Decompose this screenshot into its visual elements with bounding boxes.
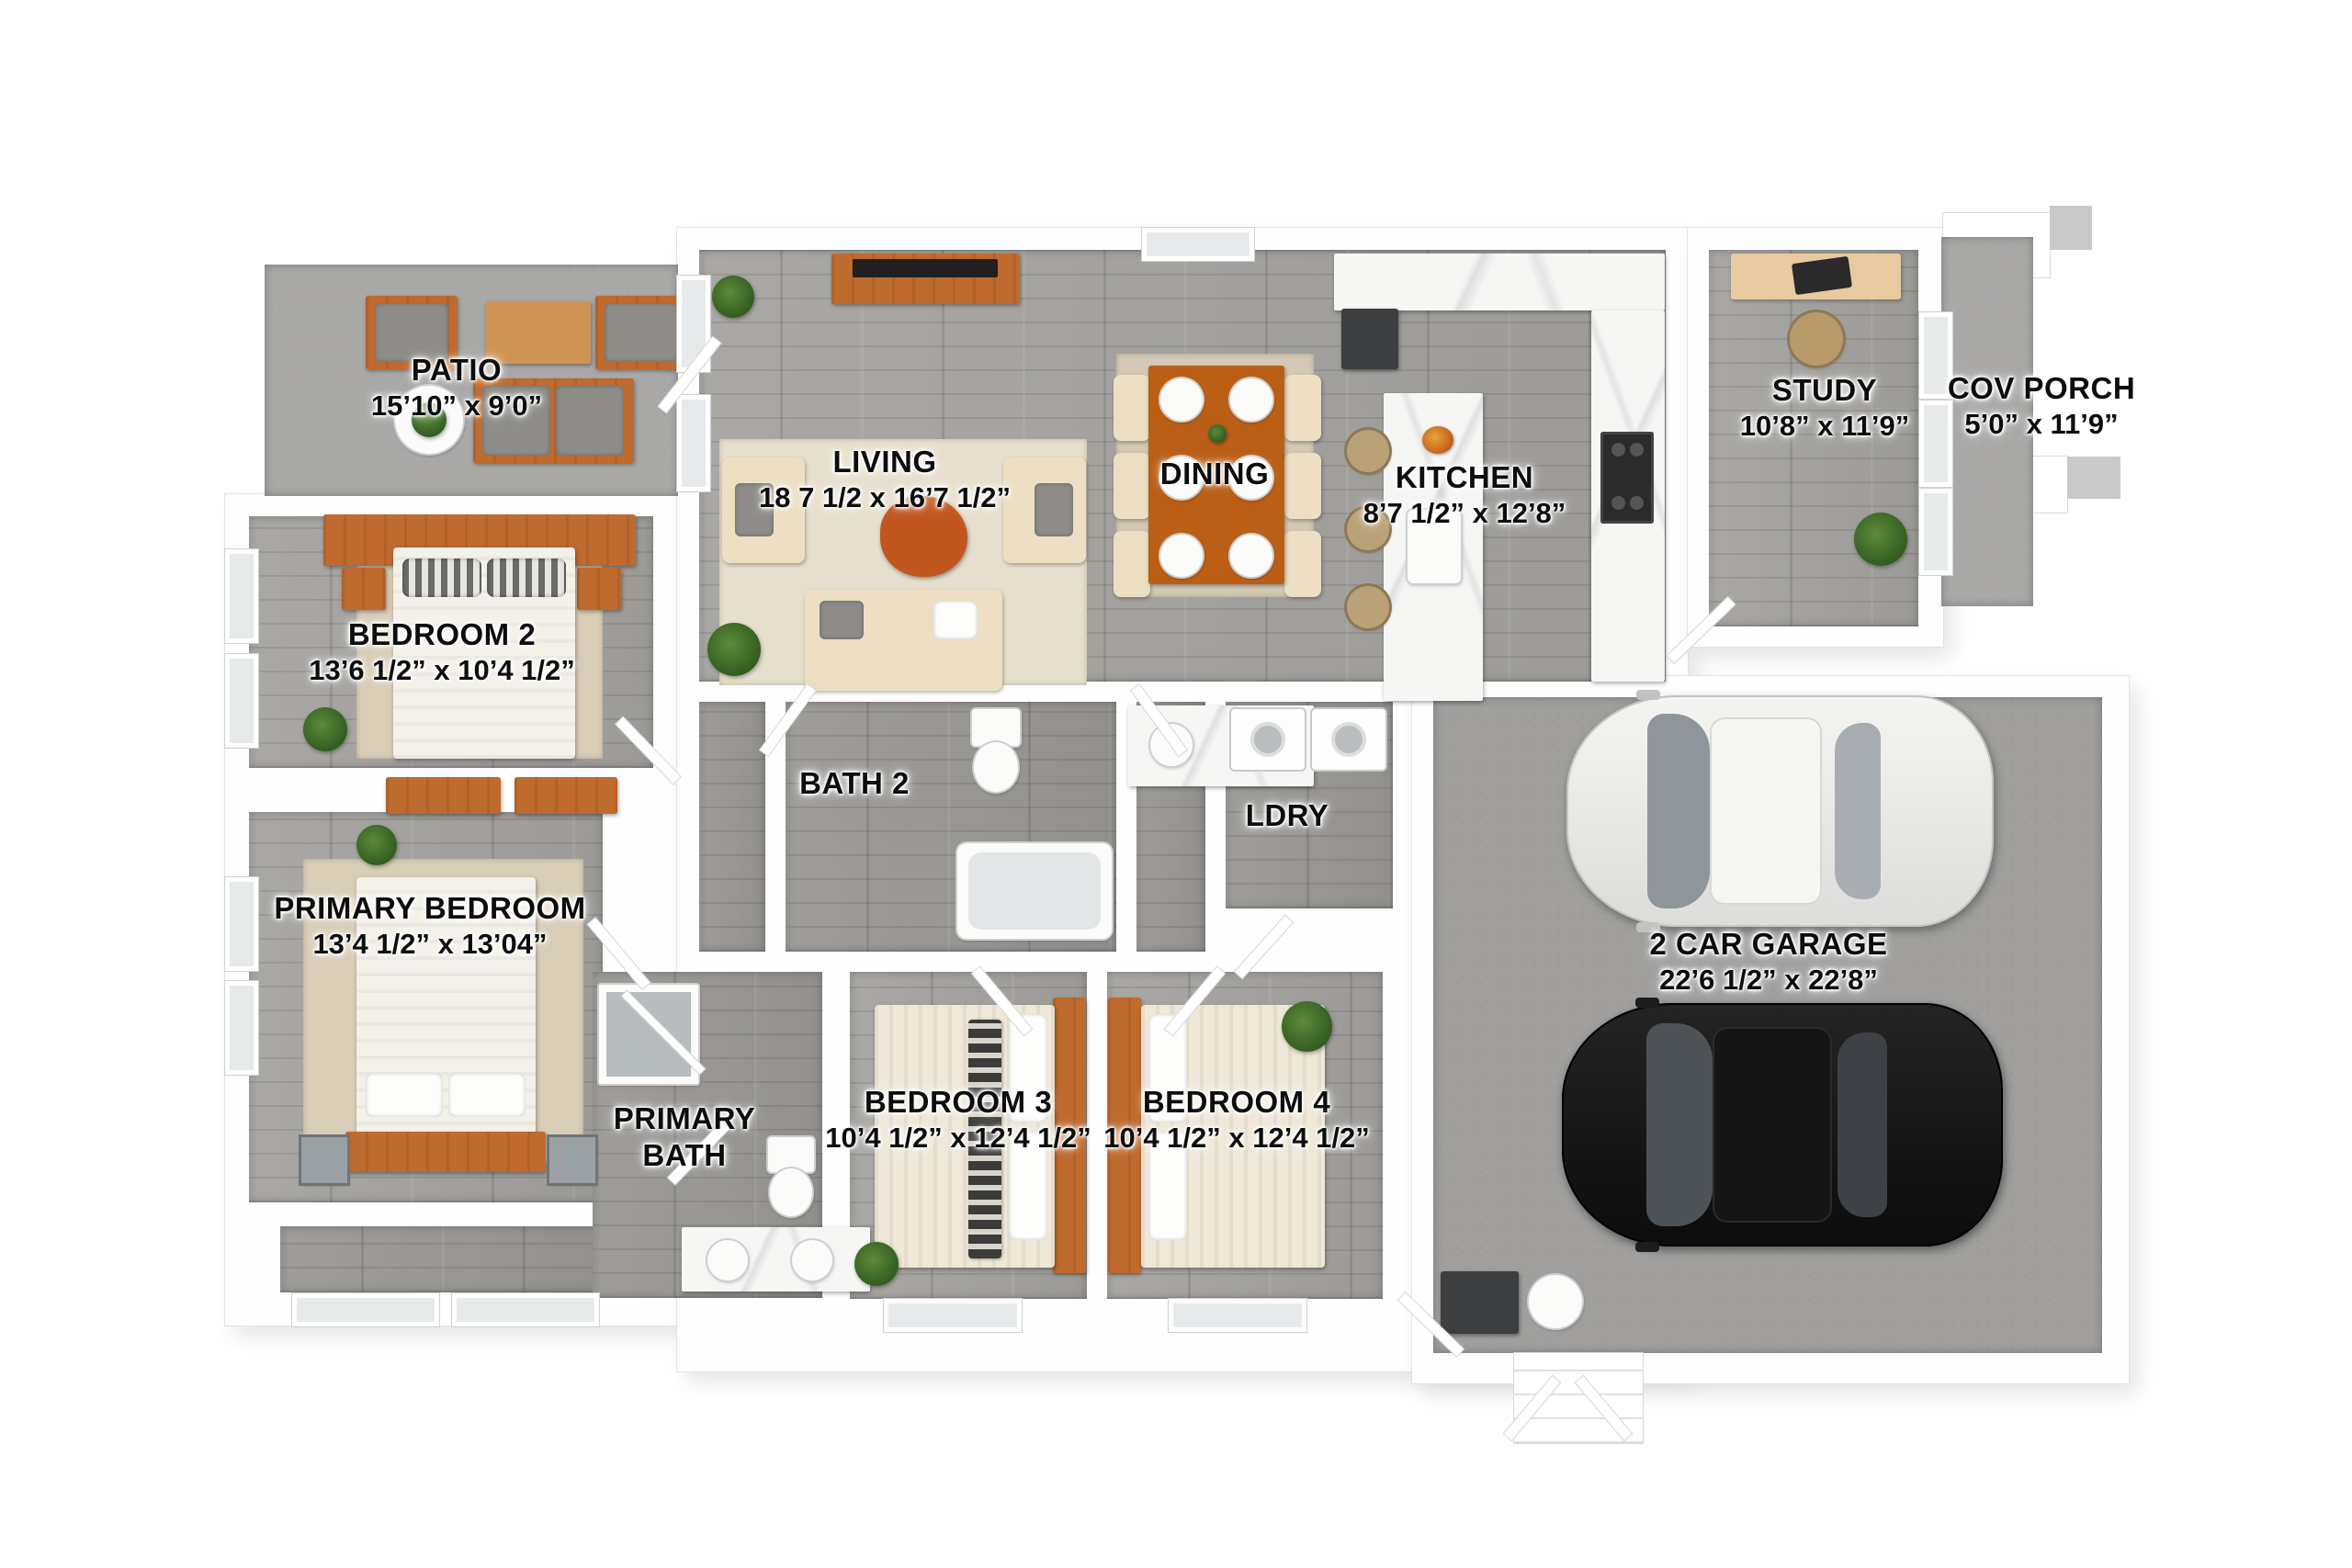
water-heater bbox=[1441, 1271, 1519, 1334]
dining-chair-l2 bbox=[1114, 453, 1150, 519]
primary-sink-1 bbox=[707, 1240, 748, 1280]
primary-sink-2 bbox=[792, 1240, 832, 1280]
room-label-bedroom3: BEDROOM 3 10’4 1/2” x 12’4 1/2” bbox=[825, 1084, 1091, 1156]
room-label-kitchen: KITCHEN 8’7 1/2” x 12’8” bbox=[1363, 459, 1566, 531]
bedroom2-pillow-left bbox=[402, 558, 481, 597]
room-name: PRIMARY BATH bbox=[586, 1100, 784, 1175]
dining-centerpiece bbox=[1208, 424, 1227, 443]
porch-beam-top-cap bbox=[2050, 206, 2092, 250]
living-plant-bottom bbox=[707, 623, 761, 676]
room-label-bedroom4: BEDROOM 4 10’4 1/2” x 12’4 1/2” bbox=[1103, 1084, 1370, 1156]
porch-beam-mid-cap bbox=[2067, 457, 2120, 499]
armchair-right bbox=[1003, 457, 1086, 563]
dryer bbox=[1312, 709, 1385, 770]
room-name: BEDROOM 2 bbox=[309, 616, 575, 653]
window-bedroom2-left-1 bbox=[225, 549, 258, 643]
bath2-tub bbox=[957, 843, 1112, 939]
room-dims: 10’8” x 11’9” bbox=[1740, 409, 1909, 444]
dresser-2 bbox=[514, 777, 617, 814]
primary-pillow-left bbox=[366, 1073, 443, 1117]
room-dims: 10’4 1/2” x 12’4 1/2” bbox=[825, 1121, 1091, 1156]
bedroom4-plant bbox=[1282, 1001, 1332, 1052]
room-name: BEDROOM 3 bbox=[825, 1084, 1091, 1121]
room-label-living: LIVING 18 7 1/2 x 16’7 1/2” bbox=[759, 444, 1011, 515]
dining-chair-r1 bbox=[1284, 375, 1321, 441]
fridge bbox=[1341, 309, 1398, 369]
room-name: COV PORCH bbox=[1948, 370, 2135, 407]
room-name: KITCHEN bbox=[1363, 459, 1566, 496]
floorplan: PATIO 15’10” x 9’0” LIVING 18 7 1/2 x 16… bbox=[0, 0, 2352, 1568]
room-label-ldry: LDRY bbox=[1246, 797, 1329, 834]
room-name: PRIMARY BEDROOM bbox=[274, 890, 585, 927]
room-label-dining: DINING bbox=[1160, 456, 1270, 492]
room-name: BEDROOM 4 bbox=[1103, 1084, 1370, 1121]
room-name: 2 CAR GARAGE bbox=[1649, 926, 1887, 963]
fruit-bowl bbox=[1422, 426, 1453, 454]
plate-1 bbox=[1160, 378, 1203, 421]
bedroom3-plant bbox=[854, 1242, 899, 1286]
room-label-bedroom2: BEDROOM 2 13’6 1/2” x 10’4 1/2” bbox=[309, 616, 575, 688]
dining-chair-r2 bbox=[1284, 453, 1321, 519]
plate-3 bbox=[1160, 535, 1203, 577]
room-name: PATIO bbox=[371, 352, 542, 389]
floorplan-page: { "rooms": { "patio": {"name": "PATIO", … bbox=[0, 0, 2352, 1568]
room-name: DINING bbox=[1160, 456, 1270, 492]
room-dims: 8’7 1/2” x 12’8” bbox=[1363, 496, 1566, 531]
primary-pillow-right bbox=[448, 1073, 526, 1117]
dining-chair-l3 bbox=[1114, 531, 1150, 597]
primary-headboard bbox=[345, 1132, 546, 1172]
window-study-right-3 bbox=[1919, 489, 1952, 575]
room-label-patio: PATIO 15’10” x 9’0” bbox=[371, 352, 542, 423]
dresser-1 bbox=[386, 777, 501, 814]
room-name: LIVING bbox=[759, 444, 1011, 480]
room-dims: 13’4 1/2” x 13’04” bbox=[274, 927, 585, 962]
patio-armchair-right bbox=[595, 296, 687, 369]
kitchen-top-counter bbox=[1334, 254, 1665, 310]
window-primary-left-1 bbox=[225, 877, 258, 971]
bath2-toilet bbox=[972, 709, 1020, 746]
room-dims: 10’4 1/2” x 12’4 1/2” bbox=[1103, 1121, 1370, 1156]
window-living-left-2 bbox=[677, 395, 710, 491]
tv bbox=[853, 259, 998, 277]
room-label-primary-bath: PRIMARY BATH bbox=[586, 1100, 784, 1175]
room-dims: 5’0” x 11’9” bbox=[1948, 407, 2135, 442]
room-name: LDRY bbox=[1246, 797, 1329, 834]
window-primary-bay-1 bbox=[292, 1293, 439, 1326]
room-label-garage: 2 CAR GARAGE 22’6 1/2” x 22’8” bbox=[1649, 926, 1887, 998]
utility-sink bbox=[1529, 1275, 1582, 1328]
primary-toilet-bowl bbox=[770, 1168, 812, 1216]
window-primary-left-2 bbox=[225, 981, 258, 1075]
plate-4 bbox=[1230, 378, 1272, 421]
stool-3 bbox=[1347, 586, 1389, 628]
room-name: STUDY bbox=[1740, 372, 1909, 409]
study-chair bbox=[1790, 312, 1843, 366]
car-black bbox=[1562, 1003, 2003, 1247]
window-primary-bay-2 bbox=[452, 1293, 599, 1326]
dining-chair-r3 bbox=[1284, 531, 1321, 597]
room-label-bath2: BATH 2 bbox=[799, 765, 910, 802]
room-label-cov-porch: COV PORCH 5’0” x 11’9” bbox=[1948, 370, 2135, 442]
bath2-toilet-bowl bbox=[974, 742, 1018, 792]
study-plant bbox=[1854, 513, 1907, 566]
room-label-primary-bedroom: PRIMARY BEDROOM 13’4 1/2” x 13’04” bbox=[274, 890, 585, 962]
primary-nightstand-left bbox=[301, 1137, 347, 1183]
plate-6 bbox=[1230, 535, 1272, 577]
room-name: BATH 2 bbox=[799, 765, 910, 802]
stove bbox=[1600, 432, 1654, 524]
room-dims: 18 7 1/2 x 16’7 1/2” bbox=[759, 480, 1011, 515]
window-bedroom2-left-2 bbox=[225, 654, 258, 748]
primary-plant bbox=[356, 825, 397, 865]
room-dims: 22’6 1/2” x 22’8” bbox=[1649, 963, 1887, 998]
window-bedroom4-bottom bbox=[1169, 1299, 1306, 1332]
bedroom2-pillow-right bbox=[487, 558, 566, 597]
room-label-study: STUDY 10’8” x 11’9” bbox=[1740, 372, 1909, 444]
window-bedroom3-bottom bbox=[884, 1299, 1022, 1332]
floor-hall-left bbox=[699, 702, 765, 952]
room-dims: 15’10” x 9’0” bbox=[371, 389, 542, 423]
dining-chair-l1 bbox=[1114, 375, 1150, 441]
bedroom2-nightstand-right bbox=[577, 568, 621, 610]
bedroom2-plant bbox=[303, 707, 347, 751]
sofa bbox=[805, 590, 1002, 691]
window-living-top bbox=[1142, 228, 1254, 261]
living-plant-top bbox=[712, 276, 754, 318]
floor-primary-bay bbox=[280, 1226, 616, 1292]
room-dims: 13’6 1/2” x 10’4 1/2” bbox=[309, 653, 575, 688]
washer bbox=[1231, 709, 1305, 770]
bedroom2-nightstand-left bbox=[342, 568, 386, 610]
car-white bbox=[1566, 695, 1994, 927]
primary-shower bbox=[599, 985, 698, 1084]
